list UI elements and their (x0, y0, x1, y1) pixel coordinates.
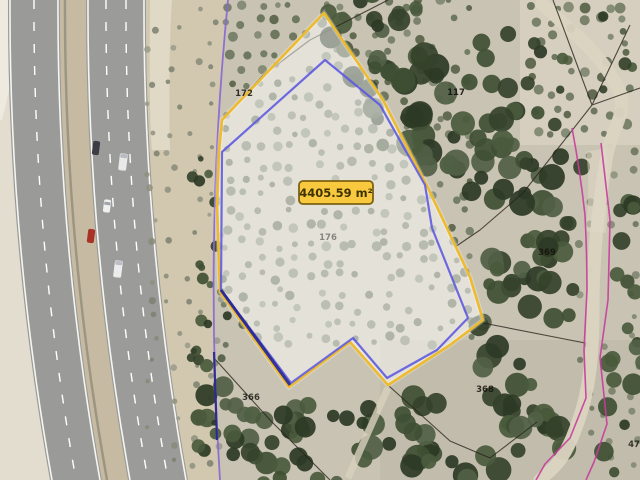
shoulder-light-band (150, 0, 172, 150)
parcel-number-label: 369 (538, 248, 556, 258)
map-canvas[interactable]: 17211717636936636847 4405.59 m² (0, 0, 640, 480)
parcel-number-label: 176 (319, 233, 337, 243)
parcel-number-label: 172 (235, 89, 253, 99)
dirt-track-wide (596, 150, 598, 232)
highway (0, 0, 228, 480)
parcel-number-label: 366 (242, 393, 260, 403)
parcel-area-label: 4405.59 m² (299, 181, 373, 204)
parcel-number-label: 47 (628, 440, 640, 450)
area-badge-text: 4405.59 m² (299, 186, 372, 200)
aerial-map-view[interactable]: 17211717636936636847 4405.59 m² (0, 0, 640, 480)
parcel-number-label: 117 (447, 88, 465, 98)
parcel-number-label: 368 (476, 385, 494, 395)
